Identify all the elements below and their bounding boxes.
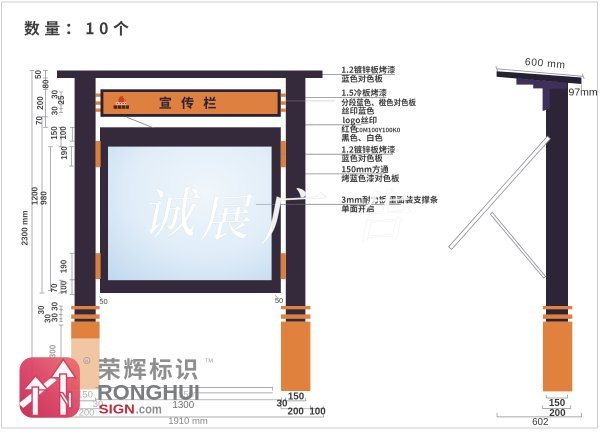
svg-text:980: 980 bbox=[39, 191, 48, 205]
svg-text:150: 150 bbox=[288, 392, 305, 403]
svg-text:1200: 1200 bbox=[31, 186, 40, 205]
svg-text:SIGN: SIGN bbox=[99, 402, 135, 417]
svg-text:150: 150 bbox=[50, 126, 59, 140]
svg-text:30: 30 bbox=[51, 301, 60, 310]
svg-text:TM: TM bbox=[205, 359, 213, 365]
svg-text:190: 190 bbox=[60, 259, 69, 273]
svg-text:30: 30 bbox=[44, 314, 53, 323]
svg-text:30: 30 bbox=[277, 399, 288, 410]
svg-text:300: 300 bbox=[49, 344, 58, 358]
svg-text:100: 100 bbox=[59, 126, 68, 140]
svg-text:200: 200 bbox=[549, 408, 566, 419]
svg-text:97mm: 97mm bbox=[569, 87, 598, 99]
svg-text:600 mm: 600 mm bbox=[524, 57, 566, 72]
svg-text:200: 200 bbox=[288, 407, 305, 418]
svg-text:30: 30 bbox=[37, 305, 46, 314]
svg-text:150: 150 bbox=[549, 398, 566, 409]
svg-text:25: 25 bbox=[57, 95, 66, 104]
svg-text:1910 mm: 1910 mm bbox=[168, 416, 208, 427]
svg-text:2300 mm: 2300 mm bbox=[21, 210, 30, 245]
svg-text:80: 80 bbox=[42, 79, 51, 88]
svg-text:50: 50 bbox=[99, 297, 107, 306]
svg-text:70: 70 bbox=[50, 283, 59, 292]
svg-text:200: 200 bbox=[79, 408, 95, 419]
svg-text:30: 30 bbox=[51, 106, 60, 115]
svg-text:50: 50 bbox=[34, 70, 43, 79]
svg-text:602: 602 bbox=[532, 417, 548, 428]
svg-text:50: 50 bbox=[275, 296, 283, 305]
svg-text:200: 200 bbox=[36, 96, 45, 110]
svg-text:190: 190 bbox=[60, 146, 69, 160]
svg-text:.com: .com bbox=[136, 402, 162, 417]
